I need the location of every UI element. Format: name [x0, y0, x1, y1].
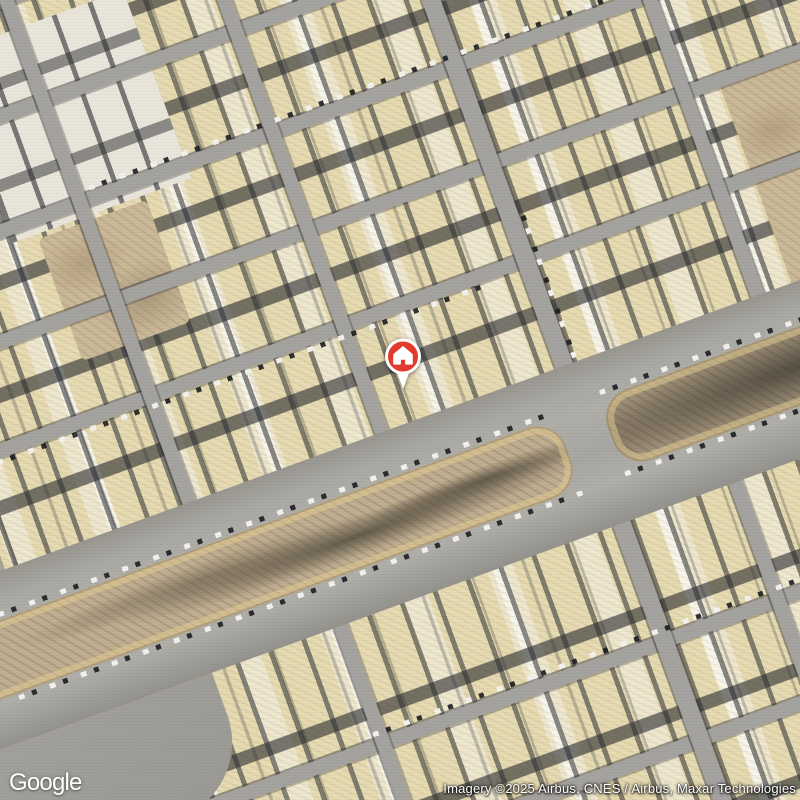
- satellite-map[interactable]: Google Imagery ©2025 Airbus, CNES / Airb…: [0, 0, 800, 800]
- google-logo[interactable]: Google: [9, 769, 82, 797]
- cross-street: [729, 480, 800, 800]
- place-marker[interactable]: [380, 337, 426, 393]
- map-attribution: Imagery ©2025 Airbus, CNES / Airbus, Max…: [443, 781, 796, 796]
- pin-tail: [397, 372, 410, 389]
- white-roof-block: [0, 0, 191, 243]
- home-marker-icon: [380, 337, 426, 393]
- map-imagery: [0, 0, 800, 800]
